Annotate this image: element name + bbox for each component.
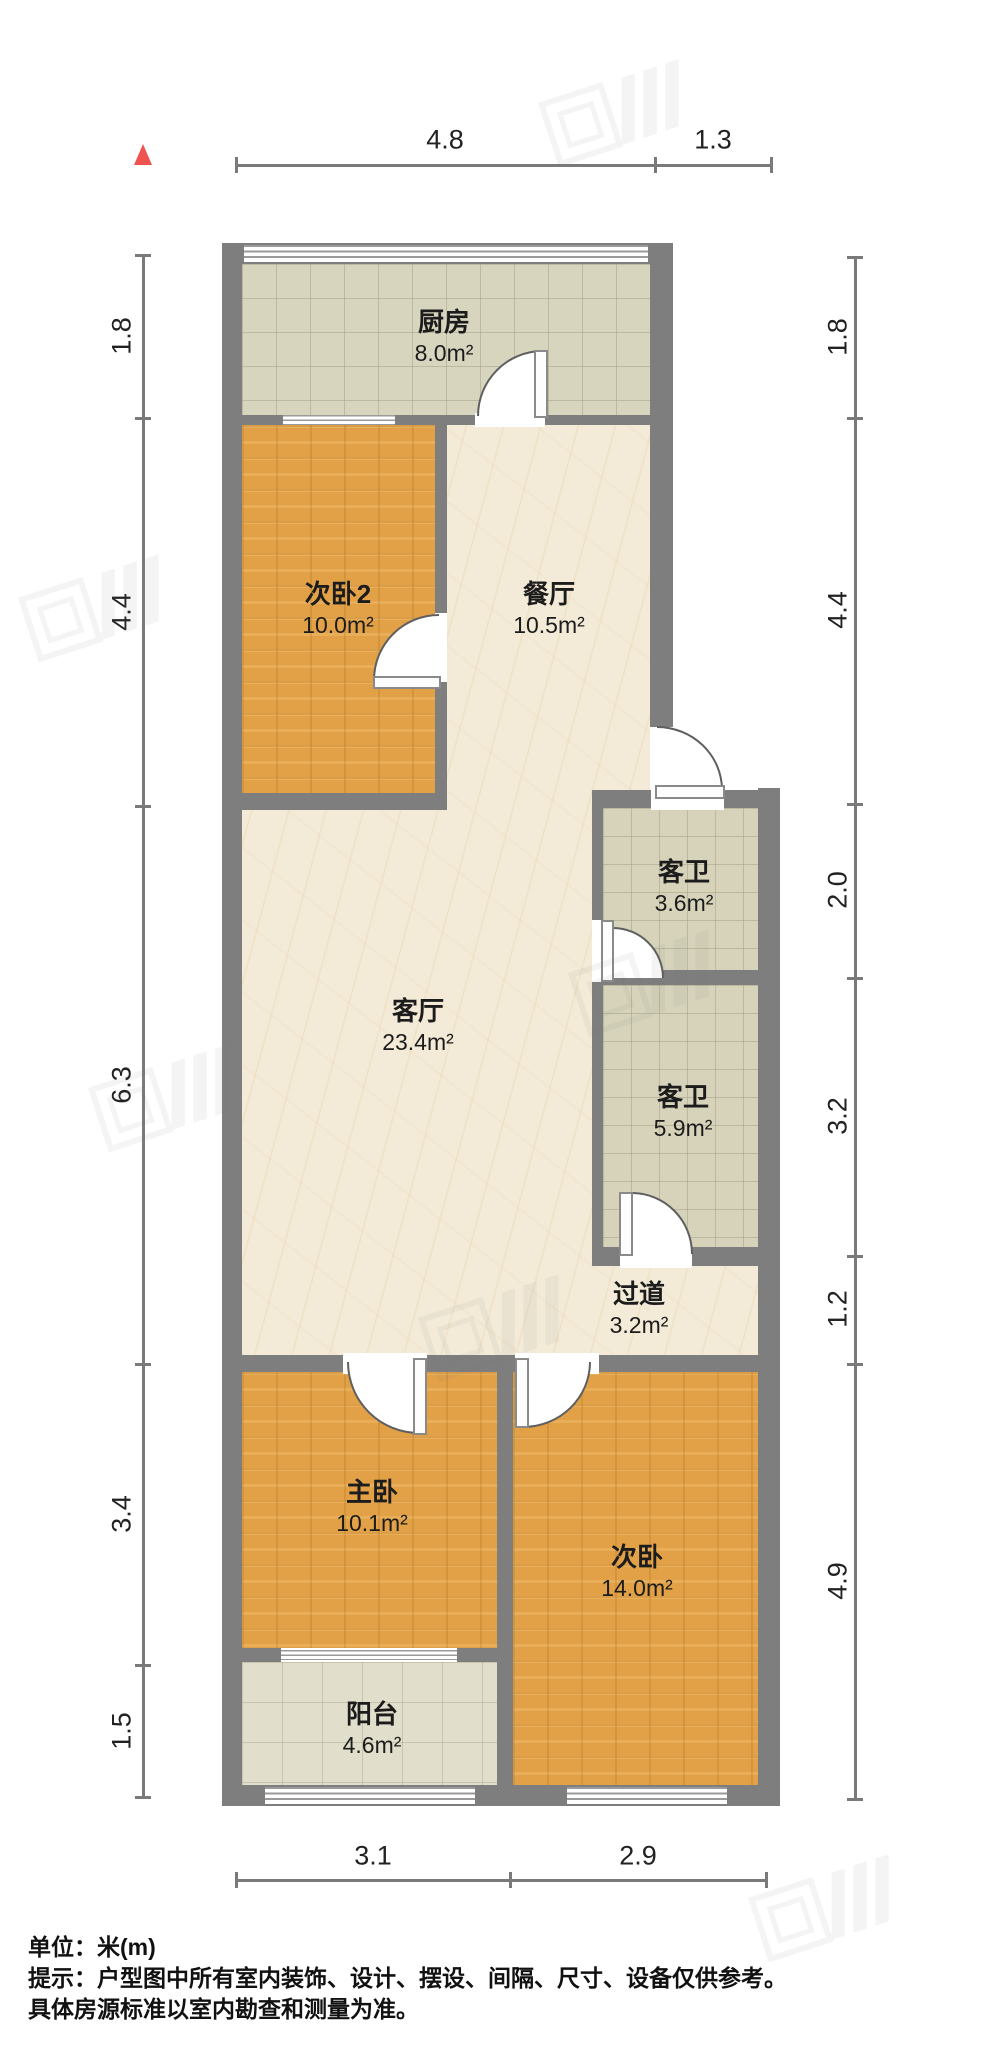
- dim-line-bottom: [236, 1879, 768, 1882]
- dim-tick: [847, 417, 863, 420]
- footer-disclaimer-2: 具体房源标准以室内勘查和测量为准。: [28, 1995, 419, 2023]
- dim-tick: [765, 1872, 768, 1888]
- dim-tick: [135, 417, 151, 420]
- room-label-kitchen: 厨房 8.0m²: [415, 306, 474, 367]
- dim-tick: [135, 1664, 151, 1667]
- dim-tick: [847, 803, 863, 806]
- bedroom2-door-panel: [373, 676, 441, 689]
- footer-disclaimer-1: 提示：户型图中所有室内装饰、设计、摆设、间隔、尺寸、设备仅供参考。: [28, 1964, 787, 1992]
- dim-tick: [847, 256, 863, 259]
- dim-label-left-1: 1.8: [107, 317, 138, 355]
- entry-door-panel: [655, 785, 725, 799]
- dim-label-left-4: 3.4: [107, 1495, 138, 1533]
- dim-tick: [770, 157, 773, 173]
- watermark-logo: [538, 60, 689, 167]
- dim-label-right-3: 2.0: [823, 871, 854, 909]
- wall-bedroom-divider: [497, 1355, 513, 1806]
- room-area: 8.0m²: [415, 339, 474, 367]
- wall-right-lower-exterior: [758, 788, 780, 1806]
- room-label-second-bedroom: 次卧 14.0m²: [601, 1541, 673, 1602]
- dim-line-right: [854, 257, 857, 1801]
- room-area: 23.4m²: [382, 1028, 454, 1056]
- room-area: 10.5m²: [513, 611, 585, 639]
- room-label-corridor: 过道 3.2m²: [610, 1278, 669, 1339]
- dim-tick: [509, 1872, 512, 1888]
- balcony-sliding-door: [281, 1650, 457, 1660]
- room-label-bath1: 客卫 3.6m²: [655, 856, 714, 917]
- room-label-master: 主卧 10.1m²: [336, 1476, 408, 1537]
- room-area: 3.2m²: [610, 1311, 669, 1339]
- room-name: 厨房: [415, 306, 474, 339]
- wall-bedroom2-bottom: [222, 793, 447, 810]
- dim-tick: [235, 1872, 238, 1888]
- room-name: 餐厅: [513, 578, 585, 611]
- room-name: 阳台: [343, 1698, 402, 1731]
- watermark-logo: [748, 1855, 899, 1962]
- room-area: 10.0m²: [302, 611, 374, 639]
- dim-label-bottom-1: 3.1: [354, 1841, 392, 1872]
- north-arrow-icon: [134, 144, 152, 165]
- footer-unit-note: 单位：米(m): [28, 1933, 156, 1961]
- balcony-window: [265, 1787, 475, 1804]
- wall-right-upper-exterior: [650, 243, 673, 727]
- dim-label-right-6: 4.9: [823, 1562, 854, 1600]
- kitchen-door-panel: [534, 350, 548, 418]
- dim-label-bottom-2: 2.9: [619, 1841, 657, 1872]
- room-label-balcony: 阳台 4.6m²: [343, 1698, 402, 1759]
- watermark-logo: [88, 1045, 239, 1152]
- room-area: 14.0m²: [601, 1574, 673, 1602]
- dim-label-right-4: 3.2: [823, 1097, 854, 1135]
- watermark-logo: [18, 555, 169, 662]
- dim-tick: [847, 1363, 863, 1366]
- dim-tick: [654, 157, 657, 173]
- dim-tick: [135, 1796, 151, 1799]
- floor-plan-canvas: 厨房 8.0m² 次卧2 10.0m² 餐厅 10.5m² 客卫 3.6m² 客…: [0, 0, 1003, 2048]
- room-area: 5.9m²: [654, 1114, 713, 1142]
- dim-label-top-2: 1.3: [694, 125, 732, 156]
- wall-balcony-stub-left: [242, 1648, 281, 1662]
- master-door-panel: [413, 1358, 427, 1435]
- dim-label-right-1: 1.8: [823, 318, 854, 356]
- room-name: 客厅: [382, 995, 454, 1028]
- room-name: 次卧2: [302, 578, 374, 611]
- dim-tick: [847, 977, 863, 980]
- room-name: 主卧: [336, 1476, 408, 1509]
- bedroom2-transom-window: [283, 415, 395, 425]
- entry-door-arc: [657, 726, 723, 790]
- dim-line-left: [142, 255, 145, 1799]
- dim-label-left-5: 1.5: [107, 1712, 138, 1750]
- room-name: 客卫: [655, 856, 714, 889]
- room-label-living: 客厅 23.4m²: [382, 995, 454, 1056]
- dim-tick: [135, 254, 151, 257]
- bath2-door-panel: [619, 1192, 633, 1256]
- dim-tick: [235, 157, 238, 173]
- room-label-bedroom2: 次卧2 10.0m²: [302, 578, 374, 639]
- room-area: 3.6m²: [655, 889, 714, 917]
- dim-line-top: [236, 164, 773, 167]
- dim-label-right-2: 4.4: [823, 591, 854, 629]
- wall-balcony-stub-right: [457, 1648, 497, 1662]
- dim-tick: [135, 805, 151, 808]
- room-label-dining: 餐厅 10.5m²: [513, 578, 585, 639]
- room-name: 客卫: [654, 1081, 713, 1114]
- dim-tick: [847, 1255, 863, 1258]
- room-area: 4.6m²: [343, 1731, 402, 1759]
- dim-label-right-5: 1.2: [823, 1290, 854, 1328]
- dim-tick: [847, 1798, 863, 1801]
- room-name: 过道: [610, 1278, 669, 1311]
- room-label-bath2: 客卫 5.9m²: [654, 1081, 713, 1142]
- room-area: 10.1m²: [336, 1509, 408, 1537]
- dim-tick: [135, 1363, 151, 1366]
- wall-left-exterior: [222, 243, 242, 1806]
- wall-bath-left: [592, 808, 603, 1266]
- second-bedroom-window: [567, 1787, 727, 1804]
- second-bedroom-door-panel: [515, 1358, 529, 1428]
- kitchen-window: [244, 245, 648, 262]
- room-name: 次卧: [601, 1541, 673, 1574]
- dim-label-top-1: 4.8: [426, 125, 464, 156]
